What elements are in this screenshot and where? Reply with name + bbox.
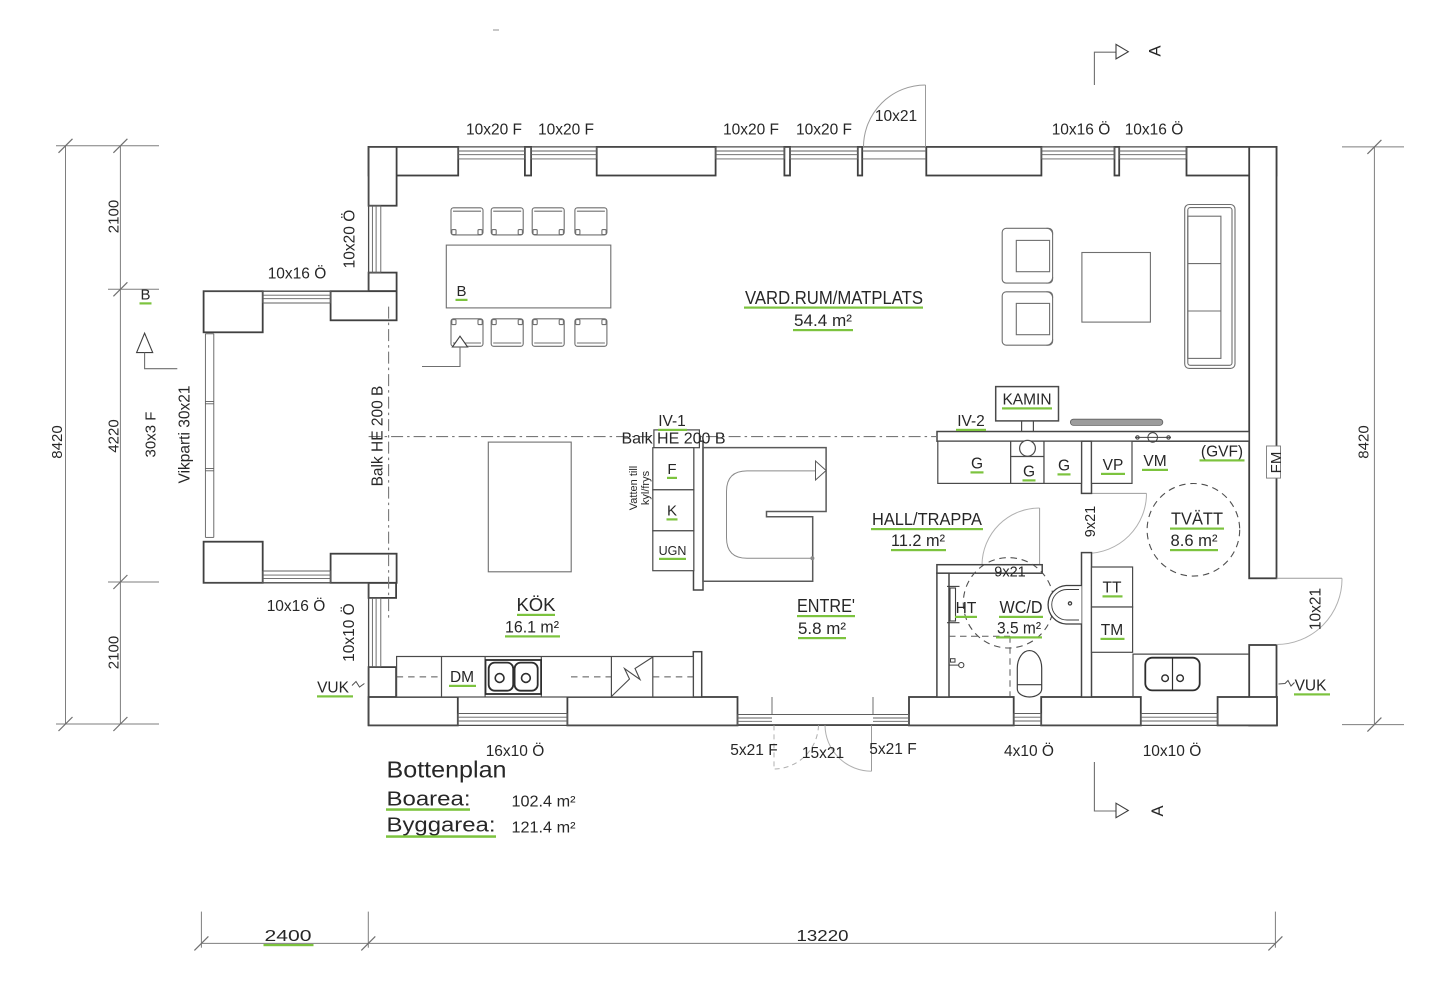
svg-text:2100: 2100 xyxy=(106,200,123,233)
svg-text:KAMIN: KAMIN xyxy=(1002,392,1051,409)
svg-text:10x10 Ö: 10x10 Ö xyxy=(340,603,358,662)
svg-text:8.6 m²: 8.6 m² xyxy=(1171,531,1218,550)
svg-text:10x20 F: 10x20 F xyxy=(796,122,852,139)
svg-text:G: G xyxy=(1023,464,1035,481)
svg-text:Balk HE 200 B: Balk HE 200 B xyxy=(370,386,387,487)
svg-text:10x20 F: 10x20 F xyxy=(466,122,522,139)
svg-text:30x3 F: 30x3 F xyxy=(143,412,160,458)
svg-text:Vatten till: Vatten till xyxy=(628,466,640,510)
svg-text:IV-1: IV-1 xyxy=(658,413,686,430)
svg-text:VP: VP xyxy=(1103,457,1124,474)
svg-text:Bottenplan: Bottenplan xyxy=(387,757,507,783)
svg-text:10x16 Ö: 10x16 Ö xyxy=(1052,121,1111,139)
svg-text:5.8 m²: 5.8 m² xyxy=(798,619,846,638)
svg-text:A: A xyxy=(1147,45,1165,56)
svg-text:16.1 m²: 16.1 m² xyxy=(505,618,559,637)
svg-text:10x20 Ö: 10x20 Ö xyxy=(341,210,359,269)
svg-text:F: F xyxy=(667,461,676,478)
svg-text:10x21: 10x21 xyxy=(1308,588,1325,630)
svg-text:121.4 m²: 121.4 m² xyxy=(512,820,576,837)
svg-text:10x20 F: 10x20 F xyxy=(538,122,594,139)
svg-text:kyl/frys: kyl/frys xyxy=(640,470,652,505)
svg-text:9x21: 9x21 xyxy=(1083,506,1099,537)
svg-text:54.4 m²: 54.4 m² xyxy=(794,311,852,330)
svg-text:K: K xyxy=(667,503,677,520)
svg-text:B: B xyxy=(456,283,466,300)
svg-text:8420: 8420 xyxy=(1356,425,1373,458)
svg-text:TT: TT xyxy=(1103,580,1122,597)
svg-text:Balk HE 200 B: Balk HE 200 B xyxy=(621,431,725,448)
svg-text:2100: 2100 xyxy=(106,636,123,669)
svg-text:4x10 Ö: 4x10 Ö xyxy=(1004,742,1054,760)
svg-text:TVÄTT: TVÄTT xyxy=(1171,509,1223,529)
svg-text:FM: FM xyxy=(1268,452,1285,474)
svg-text:HALL/TRAPPA: HALL/TRAPPA xyxy=(872,509,982,529)
svg-text:Vikparti 30x21: Vikparti 30x21 xyxy=(177,386,194,484)
svg-text:11.2 m²: 11.2 m² xyxy=(891,531,945,550)
svg-text:13220: 13220 xyxy=(797,928,849,945)
svg-text:ENTRE': ENTRE' xyxy=(797,596,855,616)
svg-text:A: A xyxy=(1149,805,1167,816)
svg-text:VM: VM xyxy=(1143,453,1166,470)
svg-text:5x21 F: 5x21 F xyxy=(730,742,777,759)
svg-text:10x21: 10x21 xyxy=(875,108,917,125)
svg-text:102.4 m²: 102.4 m² xyxy=(512,794,576,811)
svg-text:VUK: VUK xyxy=(317,680,350,697)
svg-text:10x20 F: 10x20 F xyxy=(723,122,779,139)
svg-text:10x16 Ö: 10x16 Ö xyxy=(268,265,327,283)
svg-text:2400: 2400 xyxy=(265,928,312,945)
svg-text:IV-2: IV-2 xyxy=(957,413,985,430)
svg-text:KÖK: KÖK xyxy=(516,594,556,615)
svg-text:10x10 Ö: 10x10 Ö xyxy=(1143,742,1202,760)
svg-text:G: G xyxy=(1058,458,1070,475)
svg-text:4220: 4220 xyxy=(106,419,123,452)
svg-text:VUK: VUK xyxy=(1295,678,1328,695)
svg-text:Byggarea:: Byggarea: xyxy=(387,815,496,837)
svg-text:15x21: 15x21 xyxy=(802,745,844,762)
svg-text:WC/D: WC/D xyxy=(1000,597,1043,617)
svg-text:9x21: 9x21 xyxy=(994,565,1025,581)
svg-text:HT: HT xyxy=(956,600,977,617)
svg-text:8420: 8420 xyxy=(49,425,66,458)
svg-text:Boarea:: Boarea: xyxy=(387,788,471,811)
svg-text:B: B xyxy=(140,287,150,304)
svg-text:UGN: UGN xyxy=(659,544,687,558)
svg-text:TM: TM xyxy=(1101,622,1123,639)
svg-text:5x21 F: 5x21 F xyxy=(869,741,916,758)
svg-text:10x16 Ö: 10x16 Ö xyxy=(267,597,326,615)
svg-text:10x16 Ö: 10x16 Ö xyxy=(1125,121,1184,139)
svg-text:DM: DM xyxy=(450,669,474,686)
svg-text:(GVF): (GVF) xyxy=(1201,444,1243,461)
svg-text:G: G xyxy=(971,456,983,473)
svg-text:3.5 m²: 3.5 m² xyxy=(997,619,1041,638)
svg-text:VARD.RUM/MATPLATS: VARD.RUM/MATPLATS xyxy=(745,288,923,308)
